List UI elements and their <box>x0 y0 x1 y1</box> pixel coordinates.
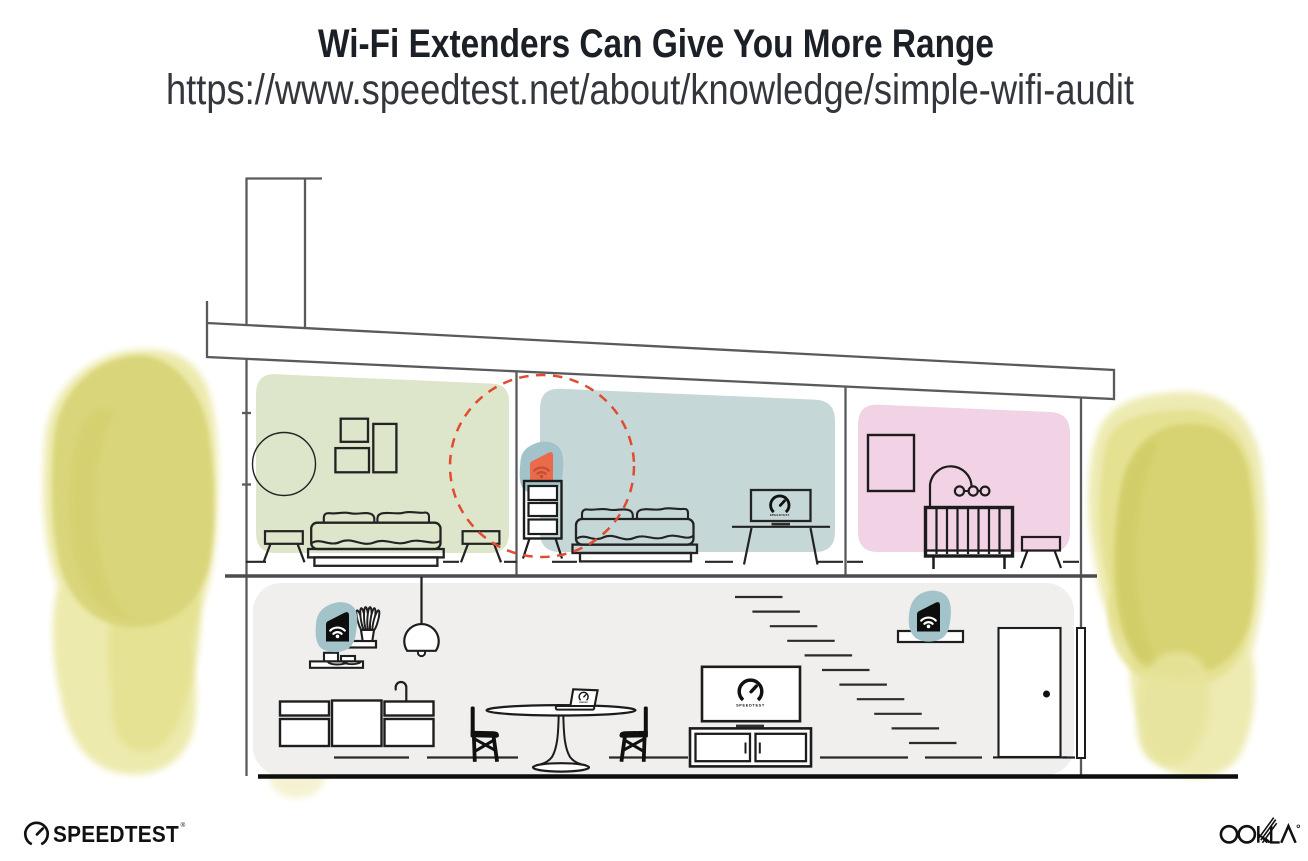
svg-text:®: ® <box>181 821 186 829</box>
svg-text:SPEEDTEST: SPEEDTEST <box>736 704 765 708</box>
svg-text:SPEEDTEST: SPEEDTEST <box>770 513 790 517</box>
svg-text:https://www.speedtest.net/abou: https://www.speedtest.net/about/knowledg… <box>166 66 1134 114</box>
svg-text:SPEEDTEST: SPEEDTEST <box>53 821 179 847</box>
svg-text:Wi-Fi Extenders Can Give You M: Wi-Fi Extenders Can Give You More Range <box>318 22 994 66</box>
